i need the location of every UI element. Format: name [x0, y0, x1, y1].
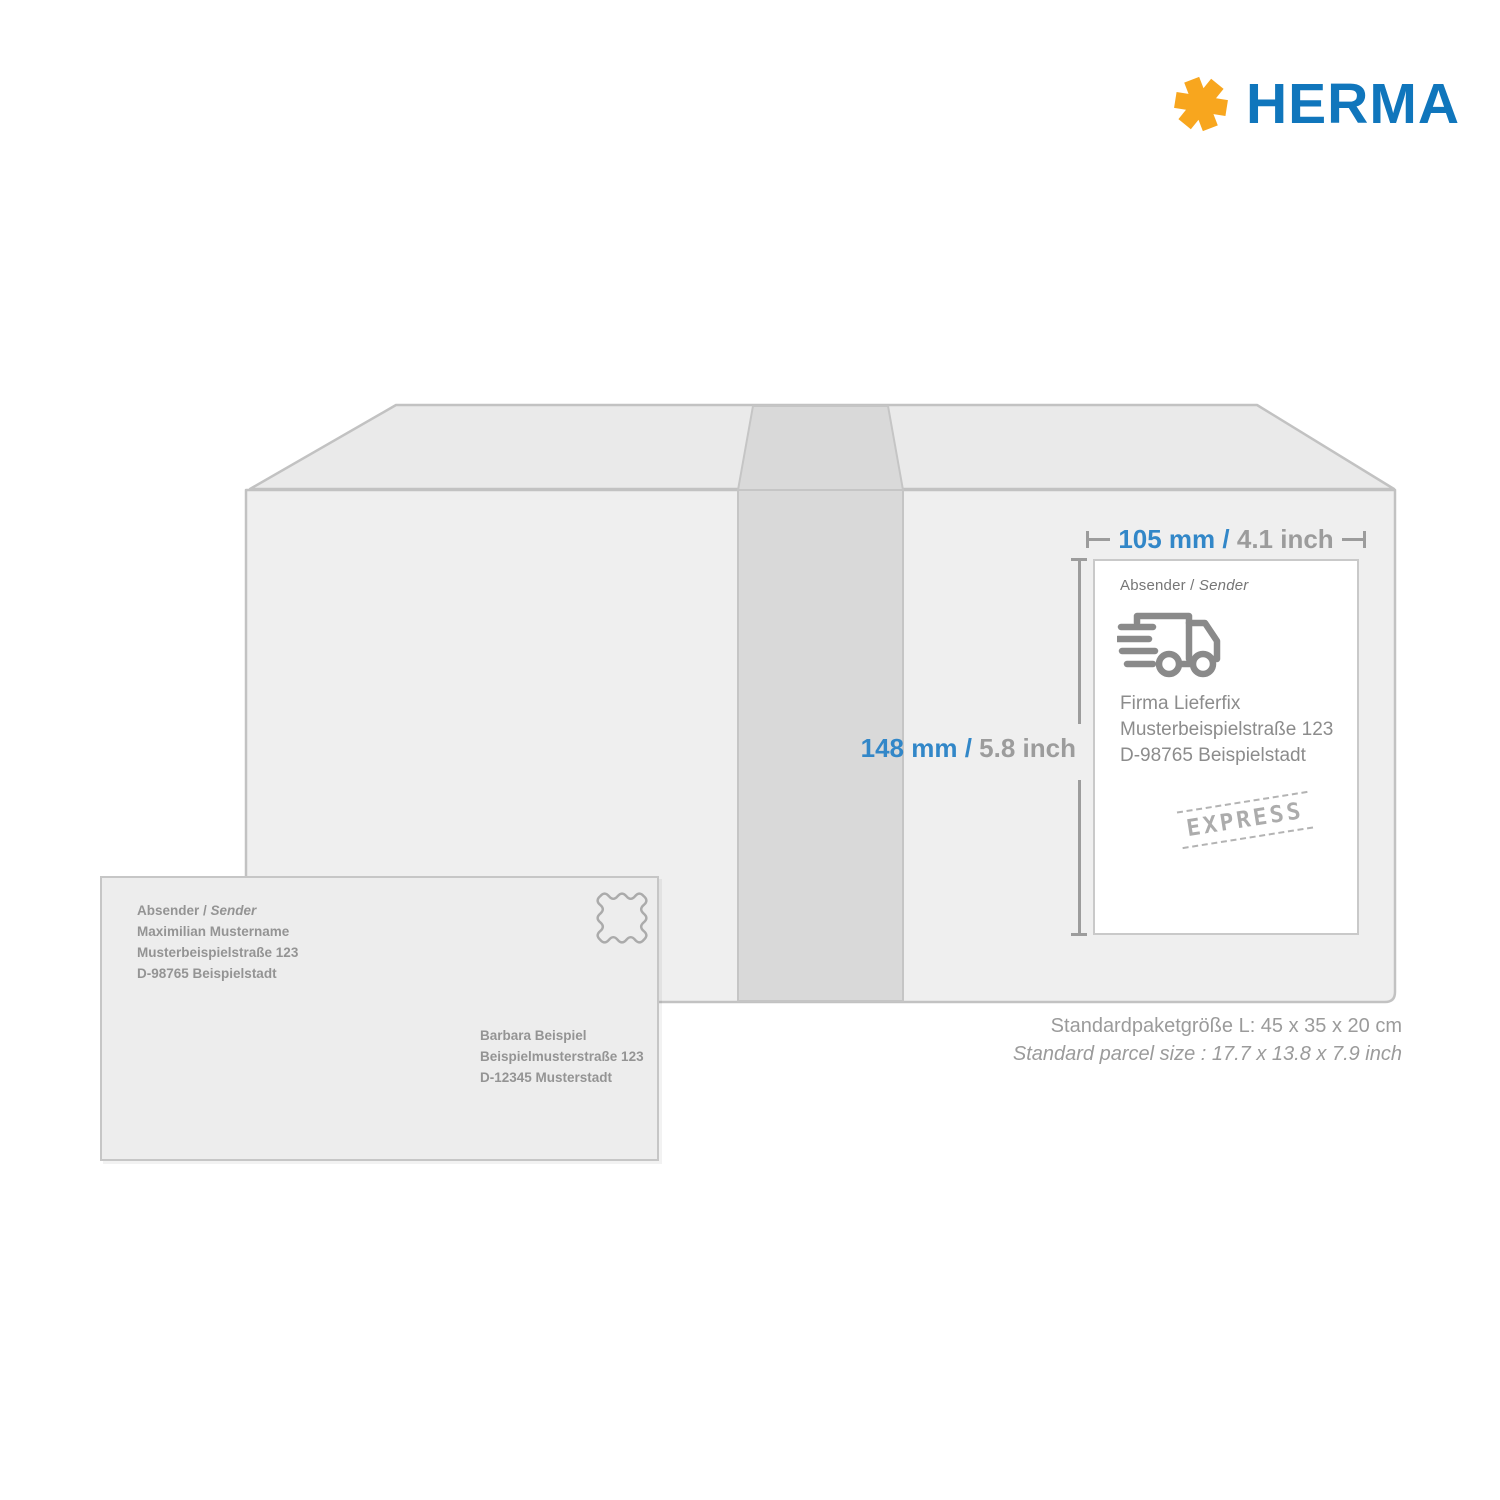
- label-address-block: Firma Lieferfix Musterbeispielstraße 123…: [1120, 691, 1333, 769]
- envelope-sender-prefix: Absender /: [137, 903, 207, 918]
- herma-wordmark: HERMA: [1246, 71, 1460, 137]
- dimension-line: [1078, 561, 1081, 724]
- dimension-line: [1078, 780, 1081, 933]
- height-dimension-text: 148 mm / 5.8 inch: [861, 733, 1076, 764]
- parcel-size-caption: Standardpaketgröße L: 45 x 35 x 20 cm St…: [1013, 1012, 1402, 1068]
- herma-product-illustration: HERMA Absender / Sender Firma Lieferfix …: [0, 0, 1500, 1500]
- postage-stamp-icon: [594, 890, 650, 946]
- envelope-sender-block: Absender / Sender Maximilian Mustername …: [137, 900, 298, 984]
- width-dimension: 105 mm / 4.1 inch: [1086, 522, 1366, 556]
- herma-asterisk-icon: [1172, 71, 1230, 137]
- envelope-sender-line: Musterbeispielstraße 123: [137, 942, 298, 963]
- envelope-sender-line: D-98765 Beispielstadt: [137, 963, 298, 984]
- label-address-line: Firma Lieferfix: [1120, 691, 1333, 717]
- height-imperial: 5.8 inch: [979, 733, 1076, 763]
- dimension-separator: /: [1222, 524, 1229, 554]
- shipping-label: Absender / Sender Firma Lieferfix Muster…: [1093, 559, 1359, 935]
- width-imperial: 4.1 inch: [1237, 524, 1334, 554]
- dimension-end-tick: [1363, 531, 1366, 548]
- height-metric: 148 mm: [861, 733, 958, 763]
- envelope-sender-word: Sender: [211, 903, 257, 918]
- label-sender-word: Sender: [1199, 577, 1249, 594]
- envelope-sender-line: Maximilian Mustername: [137, 921, 298, 942]
- dimension-separator: /: [965, 733, 972, 763]
- delivery-truck-icon: [1117, 607, 1235, 683]
- express-stamp: EXPRESS: [1177, 791, 1313, 849]
- herma-logo: HERMA: [1172, 68, 1472, 140]
- label-sender-prefix: Absender /: [1120, 577, 1195, 594]
- parcel-size-imperial: Standard parcel size : 17.7 x 13.8 x 7.9…: [1013, 1040, 1402, 1068]
- label-sender-line: Absender / Sender: [1120, 577, 1249, 594]
- envelope-recipient-line: Beispielmusterstraße 123: [480, 1046, 644, 1067]
- envelope-recipient-line: Barbara Beispiel: [480, 1025, 644, 1046]
- parcel-tape-top: [738, 406, 903, 490]
- dimension-line: [1342, 538, 1363, 541]
- width-metric: 105 mm: [1118, 524, 1215, 554]
- envelope: Absender / Sender Maximilian Mustername …: [100, 876, 659, 1161]
- label-address-line: D-98765 Beispielstadt: [1120, 743, 1333, 769]
- width-dimension-text: 105 mm / 4.1 inch: [1118, 524, 1333, 555]
- parcel-size-metric: Standardpaketgröße L: 45 x 35 x 20 cm: [1013, 1012, 1402, 1040]
- dimension-line: [1089, 538, 1110, 541]
- envelope-recipient-line: D-12345 Musterstadt: [480, 1067, 644, 1088]
- label-address-line: Musterbeispielstraße 123: [1120, 717, 1333, 743]
- envelope-recipient-block: Barbara Beispiel Beispielmusterstraße 12…: [480, 1025, 644, 1088]
- envelope-sender-line: Absender / Sender: [137, 900, 298, 921]
- dimension-end-tick: [1071, 933, 1087, 936]
